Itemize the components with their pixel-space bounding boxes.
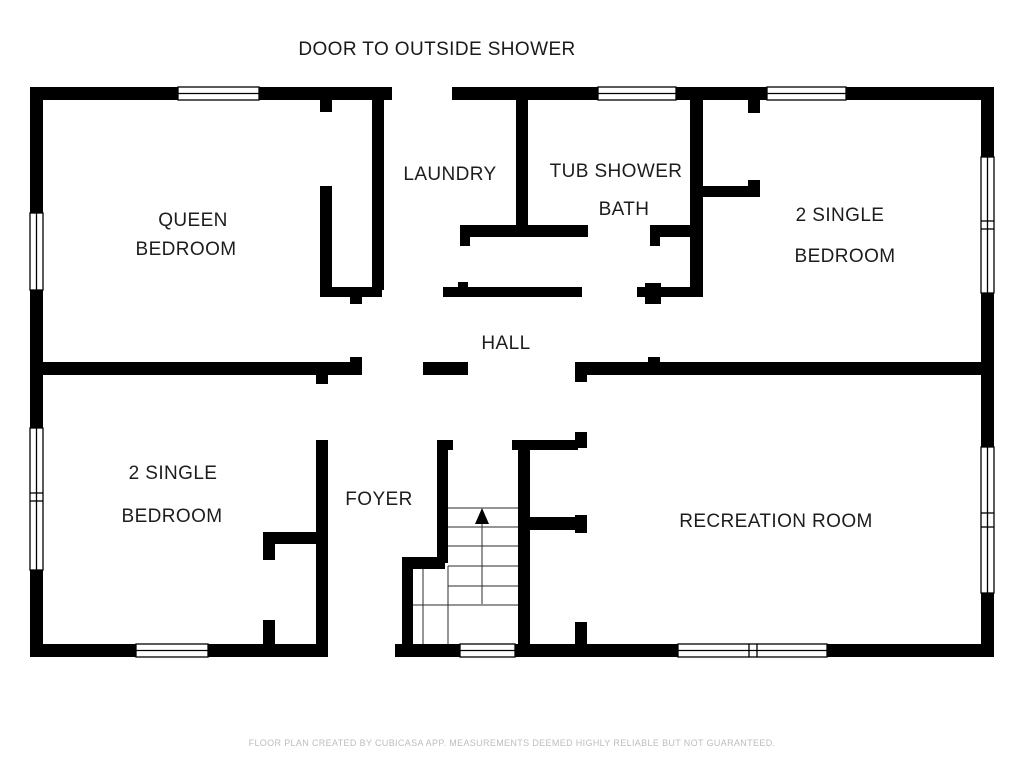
wall-segment [690,97,703,297]
wall-segment [528,225,588,237]
wall-segment [530,517,578,530]
front-entry-door-gap [328,643,395,658]
wall-segment [460,237,470,246]
floor-plan: DOOR TO OUTSIDE SHOWER QUEEN BEDROOM LAU… [0,0,1024,768]
wall-segment [443,287,582,297]
stairs-direction-up-arrow-icon [475,508,489,604]
room-label-hall: HALL [481,333,530,355]
wall-segment [320,287,382,297]
wall-segment [575,362,981,375]
wall-segment [575,622,587,644]
wall-segment [437,440,453,450]
wall-segment [320,98,332,112]
room-label-tub-shower-bath-line1: TUB SHOWER [550,161,683,183]
room-label-single-bedroom-left-line2: BEDROOM [122,506,223,528]
window-icon [767,87,846,100]
wall-segment [30,87,994,100]
wall-segment [423,362,468,375]
room-label-single-bedroom-right-line1: 2 SINGLE [796,205,885,227]
wall-segment [30,362,362,375]
window-icon [678,644,827,657]
window-icon [178,87,259,100]
wall-segment [402,569,413,644]
wall-segment [650,225,703,237]
wall-segment [650,237,660,246]
wall-segment [263,532,316,544]
window-icon [460,644,515,657]
wall-segment [402,557,445,569]
wall-segment [437,450,448,563]
room-label-single-bedroom-right-line2: BEDROOM [795,246,896,268]
wall-segment [512,440,578,450]
interior-walls [30,88,981,645]
outside-shower-door-gap [392,86,452,101]
wall-segment [316,375,328,384]
staircase [413,508,518,644]
wall-segment [316,440,328,644]
room-label-foyer: FOYER [345,489,412,511]
wall-segment [645,283,661,304]
wall-segment [460,225,516,237]
wall-segment [263,544,275,560]
room-label-single-bedroom-left-line1: 2 SINGLE [129,463,218,485]
window-icon [136,644,208,657]
wall-segment [516,98,528,237]
window-icon [598,87,676,100]
wall-segment [263,620,275,644]
wall-segment [748,88,760,113]
wall-segment [518,450,530,645]
wall-segment [372,98,384,290]
footer-disclaimer: FLOOR PLAN CREATED BY CUBICASA APP. MEAS… [249,738,776,748]
wall-segment [320,186,332,290]
wall-segment [575,515,587,533]
wall-segment [703,186,760,197]
room-label-laundry: LAUNDRY [403,164,496,186]
wall-segment [350,297,362,304]
room-label-queen-bedroom-line2: BEDROOM [136,239,237,261]
wall-segment [350,357,362,363]
wall-segment [575,432,587,448]
floor-plan-drawing [0,0,1024,768]
window-icon [30,213,43,290]
window-icon [981,447,994,593]
room-label-recreation-room: RECREATION ROOM [679,511,873,533]
wall-segment [458,282,468,288]
window-icon [30,428,43,570]
window-icon [981,157,994,293]
page-title: DOOR TO OUTSIDE SHOWER [298,39,575,61]
room-label-queen-bedroom-line1: QUEEN [158,210,228,232]
wall-segment [575,375,587,382]
wall-segment [648,357,660,363]
room-label-tub-shower-bath-line2: BATH [599,199,650,221]
